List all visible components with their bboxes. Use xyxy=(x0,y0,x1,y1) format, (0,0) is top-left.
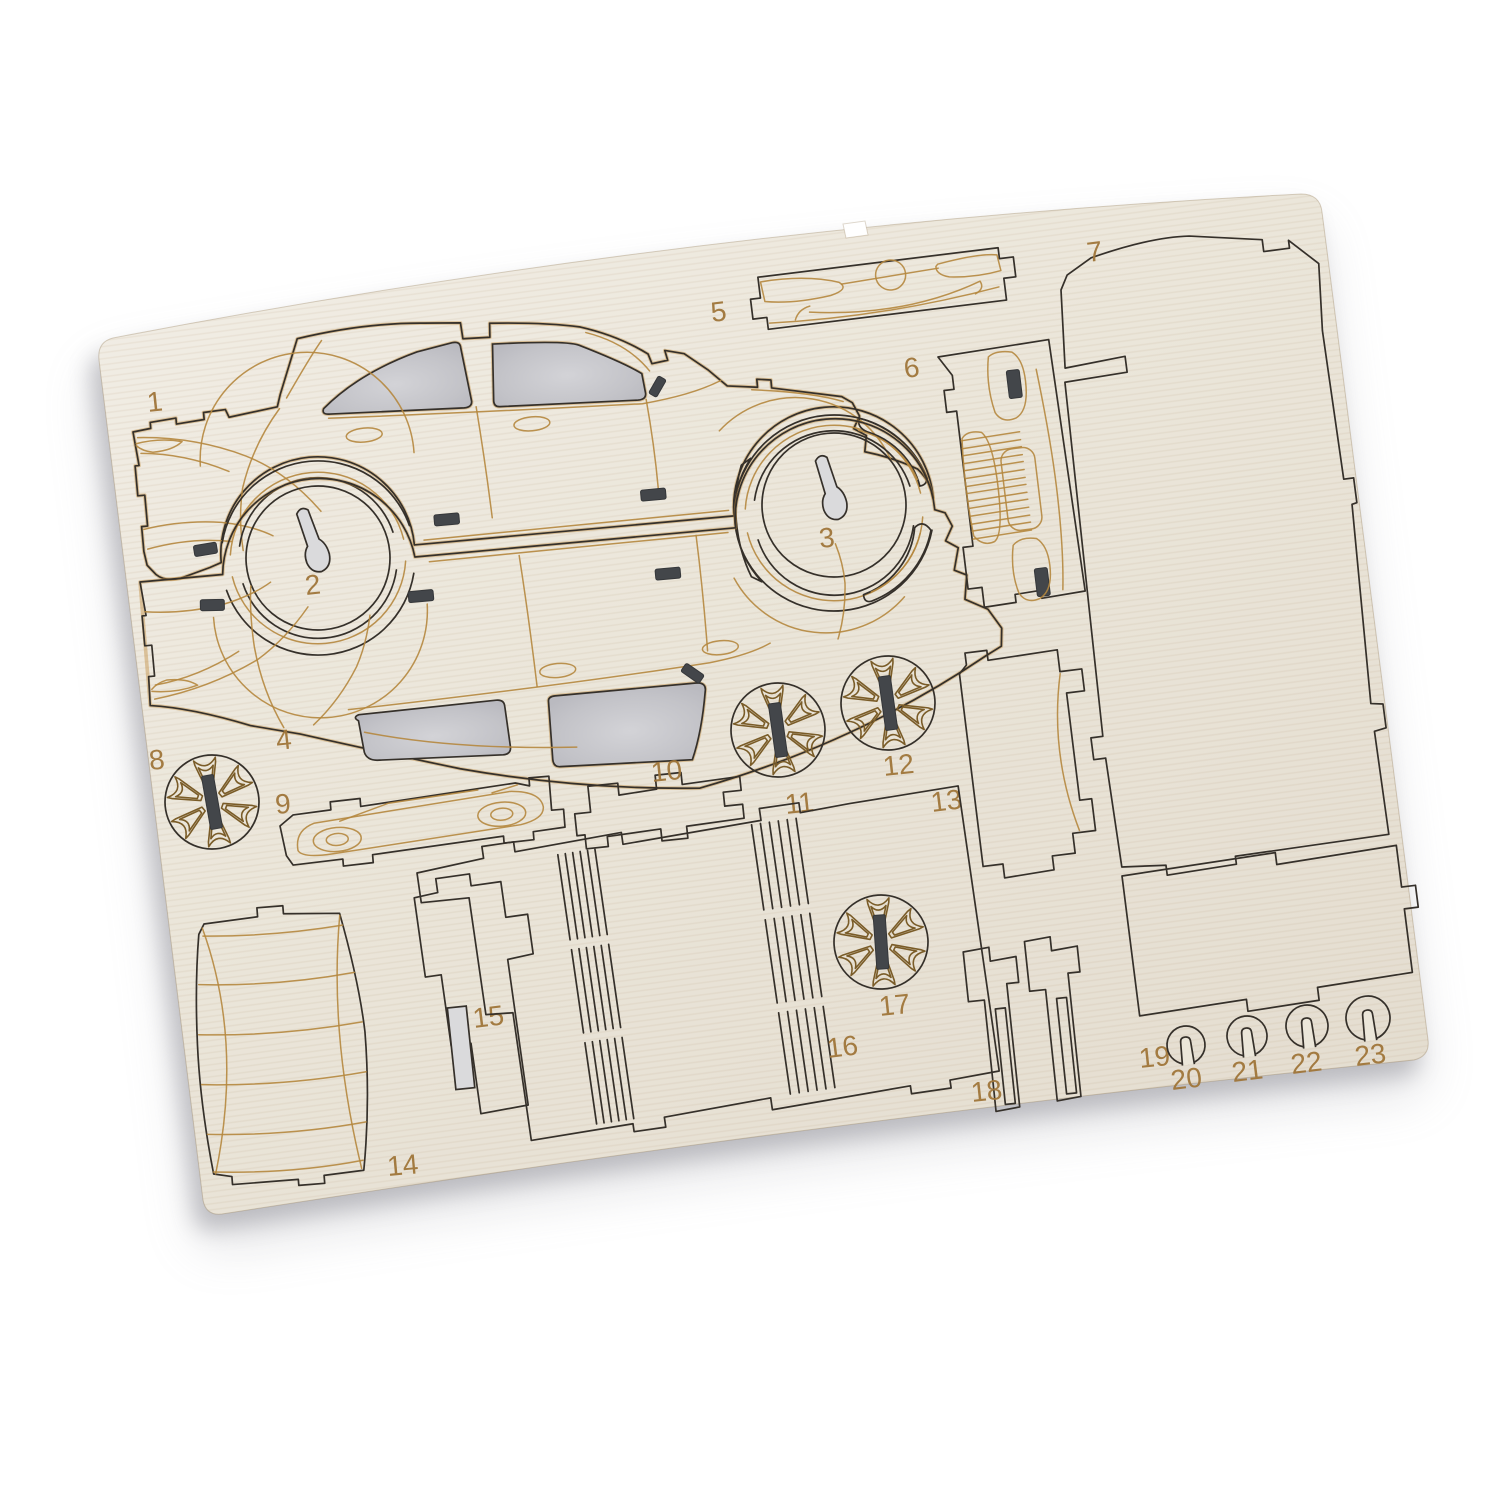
svg-text:15: 15 xyxy=(471,999,506,1034)
svg-text:3: 3 xyxy=(817,522,836,554)
svg-text:9: 9 xyxy=(274,788,292,820)
svg-text:14: 14 xyxy=(386,1148,420,1182)
svg-text:17: 17 xyxy=(877,988,911,1022)
svg-text:4: 4 xyxy=(274,724,293,756)
svg-text:22: 22 xyxy=(1289,1045,1324,1080)
svg-text:23: 23 xyxy=(1353,1037,1388,1072)
svg-text:10: 10 xyxy=(649,754,683,788)
svg-text:16: 16 xyxy=(825,1029,860,1064)
svg-text:1: 1 xyxy=(145,386,164,418)
svg-text:8: 8 xyxy=(147,744,166,776)
svg-text:12: 12 xyxy=(881,748,915,782)
svg-text:2: 2 xyxy=(303,569,322,601)
svg-text:18: 18 xyxy=(969,1074,1003,1108)
svg-text:21: 21 xyxy=(1230,1053,1265,1088)
svg-text:20: 20 xyxy=(1169,1061,1204,1096)
